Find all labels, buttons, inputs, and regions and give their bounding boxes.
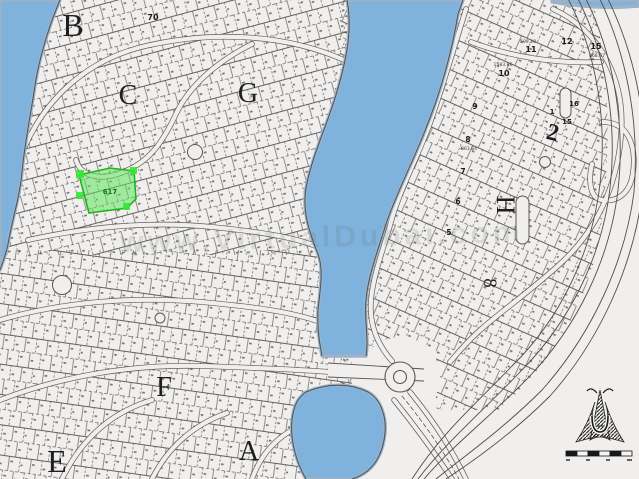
section-letter-b: B xyxy=(62,7,83,43)
plot-number: 7 xyxy=(460,167,465,176)
area-label: 868.87 xyxy=(589,53,605,59)
big-number-8: 8 xyxy=(479,278,500,288)
plot-number: 11 xyxy=(525,45,537,54)
area-label: 1383.86 xyxy=(494,62,513,68)
plot-number: 16 xyxy=(569,100,579,108)
plot-number: 12 xyxy=(561,37,572,46)
section-letter-c: C xyxy=(119,80,138,111)
plot-number: 6 xyxy=(455,197,460,206)
plot-number: 10 xyxy=(498,69,510,78)
plot-number: 8 xyxy=(465,135,470,144)
area-label: 599.28 xyxy=(520,39,536,45)
plot-number: 1 xyxy=(550,108,555,116)
section-letter-a: A xyxy=(239,436,260,467)
section-letter-e: E xyxy=(47,443,67,479)
area-label: 863.84 xyxy=(461,146,477,152)
section-letter-f: F xyxy=(156,372,172,403)
plot-number: 70 xyxy=(147,13,159,22)
roundabout xyxy=(385,362,415,392)
map-canvas: B C G F E A H 2 8 70 10 11 12 15 9 8 7 6… xyxy=(0,0,639,479)
plot-number: 15 xyxy=(590,42,602,51)
plot-map-image: B C G F E A H 2 8 70 10 11 12 15 9 8 7 6… xyxy=(0,0,639,479)
plot-number: 9 xyxy=(472,102,477,111)
plot-number: 15 xyxy=(562,118,572,126)
section-letter-g: G xyxy=(238,78,258,109)
section-letter-h: H xyxy=(491,196,520,215)
highlighted-plot-number: 617 xyxy=(103,188,118,196)
